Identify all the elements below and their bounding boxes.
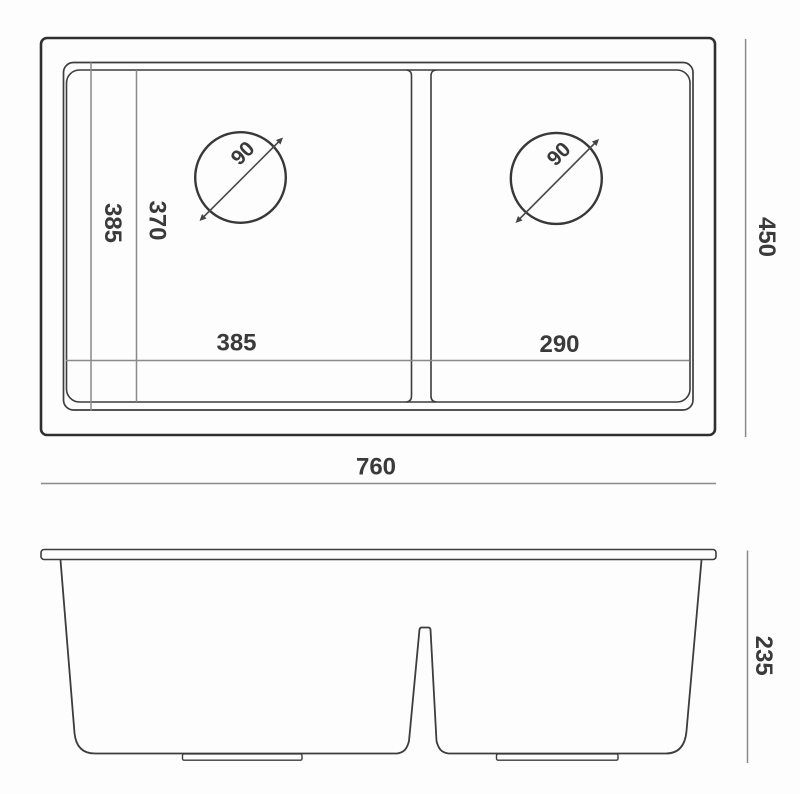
svg-text:235: 235 bbox=[750, 636, 777, 676]
svg-text:450: 450 bbox=[753, 217, 780, 257]
svg-text:290: 290 bbox=[539, 331, 579, 358]
svg-text:385: 385 bbox=[216, 330, 256, 357]
svg-text:760: 760 bbox=[356, 454, 396, 481]
svg-text:370: 370 bbox=[144, 200, 171, 240]
svg-text:385: 385 bbox=[99, 203, 126, 243]
